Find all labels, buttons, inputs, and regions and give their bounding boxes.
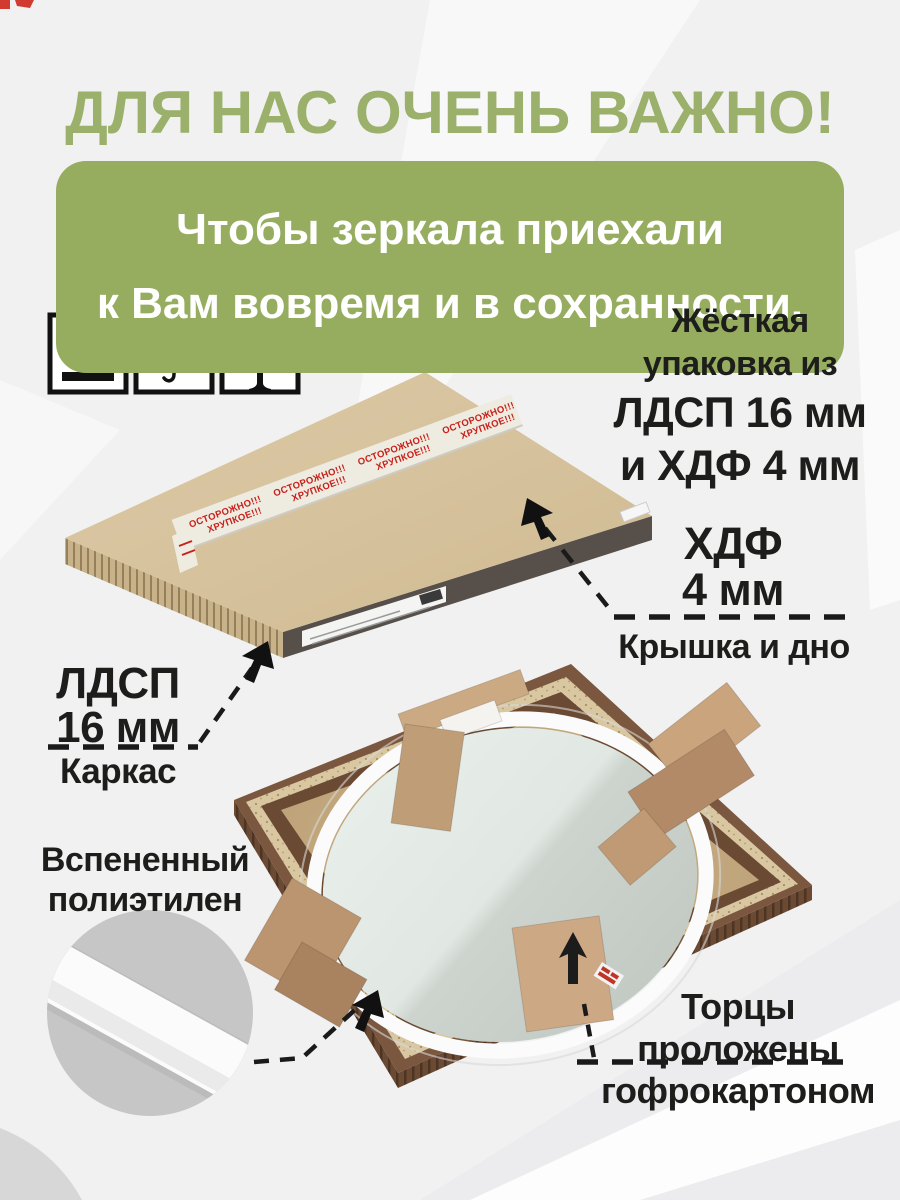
hdf-thickness: 4 мм: [612, 567, 854, 613]
ldsp-thickness: 16 мм: [28, 706, 208, 750]
edges-line-3: гофрокартоном: [598, 1070, 878, 1112]
ldsp-material: ЛДСП: [28, 662, 208, 706]
callout-rigid-packaging: Жёсткая упаковка из ЛДСП 16 мм и ХДФ 4 м…: [598, 300, 882, 492]
rigid-line-1: Жёсткая: [598, 300, 882, 342]
ldsp-caption: Каркас: [28, 752, 208, 792]
red-sliver: [0, 0, 34, 9]
closed-package-photo: ОСТОРОЖНО!!! ХРУПКОЕ!!! ОСТОРОЖНО!!! ХРУ…: [65, 372, 652, 658]
foam-line-1: Вспененный: [20, 840, 270, 880]
rigid-line-3: ЛДСП 16 мм: [598, 386, 882, 440]
callout-foam: Вспененный полиэтилен: [20, 840, 270, 920]
hdf-material: ХДФ: [612, 521, 854, 567]
rigid-line-4: и ХДФ 4 мм: [598, 440, 882, 492]
page-title: ДЛЯ НАС ОЧЕНЬ ВАЖНО!: [0, 78, 900, 147]
edges-line-1: Торцы: [598, 986, 878, 1028]
foam-detail-circle: [0, 910, 292, 1127]
infographic-canvas: ОСТОРОЖНО!!! ХРУПКОЕ!!! ОСТОРОЖНО!!! ХРУ…: [0, 0, 900, 1200]
arrow-to-frame-icon: [242, 641, 274, 683]
edges-line-2: проложены: [598, 1028, 878, 1070]
rigid-line-2: упаковка из: [598, 342, 882, 386]
callout-edges: Торцы проложены гофрокартоном: [598, 986, 878, 1112]
hdf-caption: Крышка и дно: [608, 628, 860, 667]
callout-ldsp: ЛДСП 16 мм: [28, 662, 208, 750]
callout-hdf: ХДФ 4 мм: [612, 521, 854, 613]
foam-line-2: полиэтилен: [20, 880, 270, 920]
banner-line-1: Чтобы зеркала приехали: [176, 205, 724, 255]
